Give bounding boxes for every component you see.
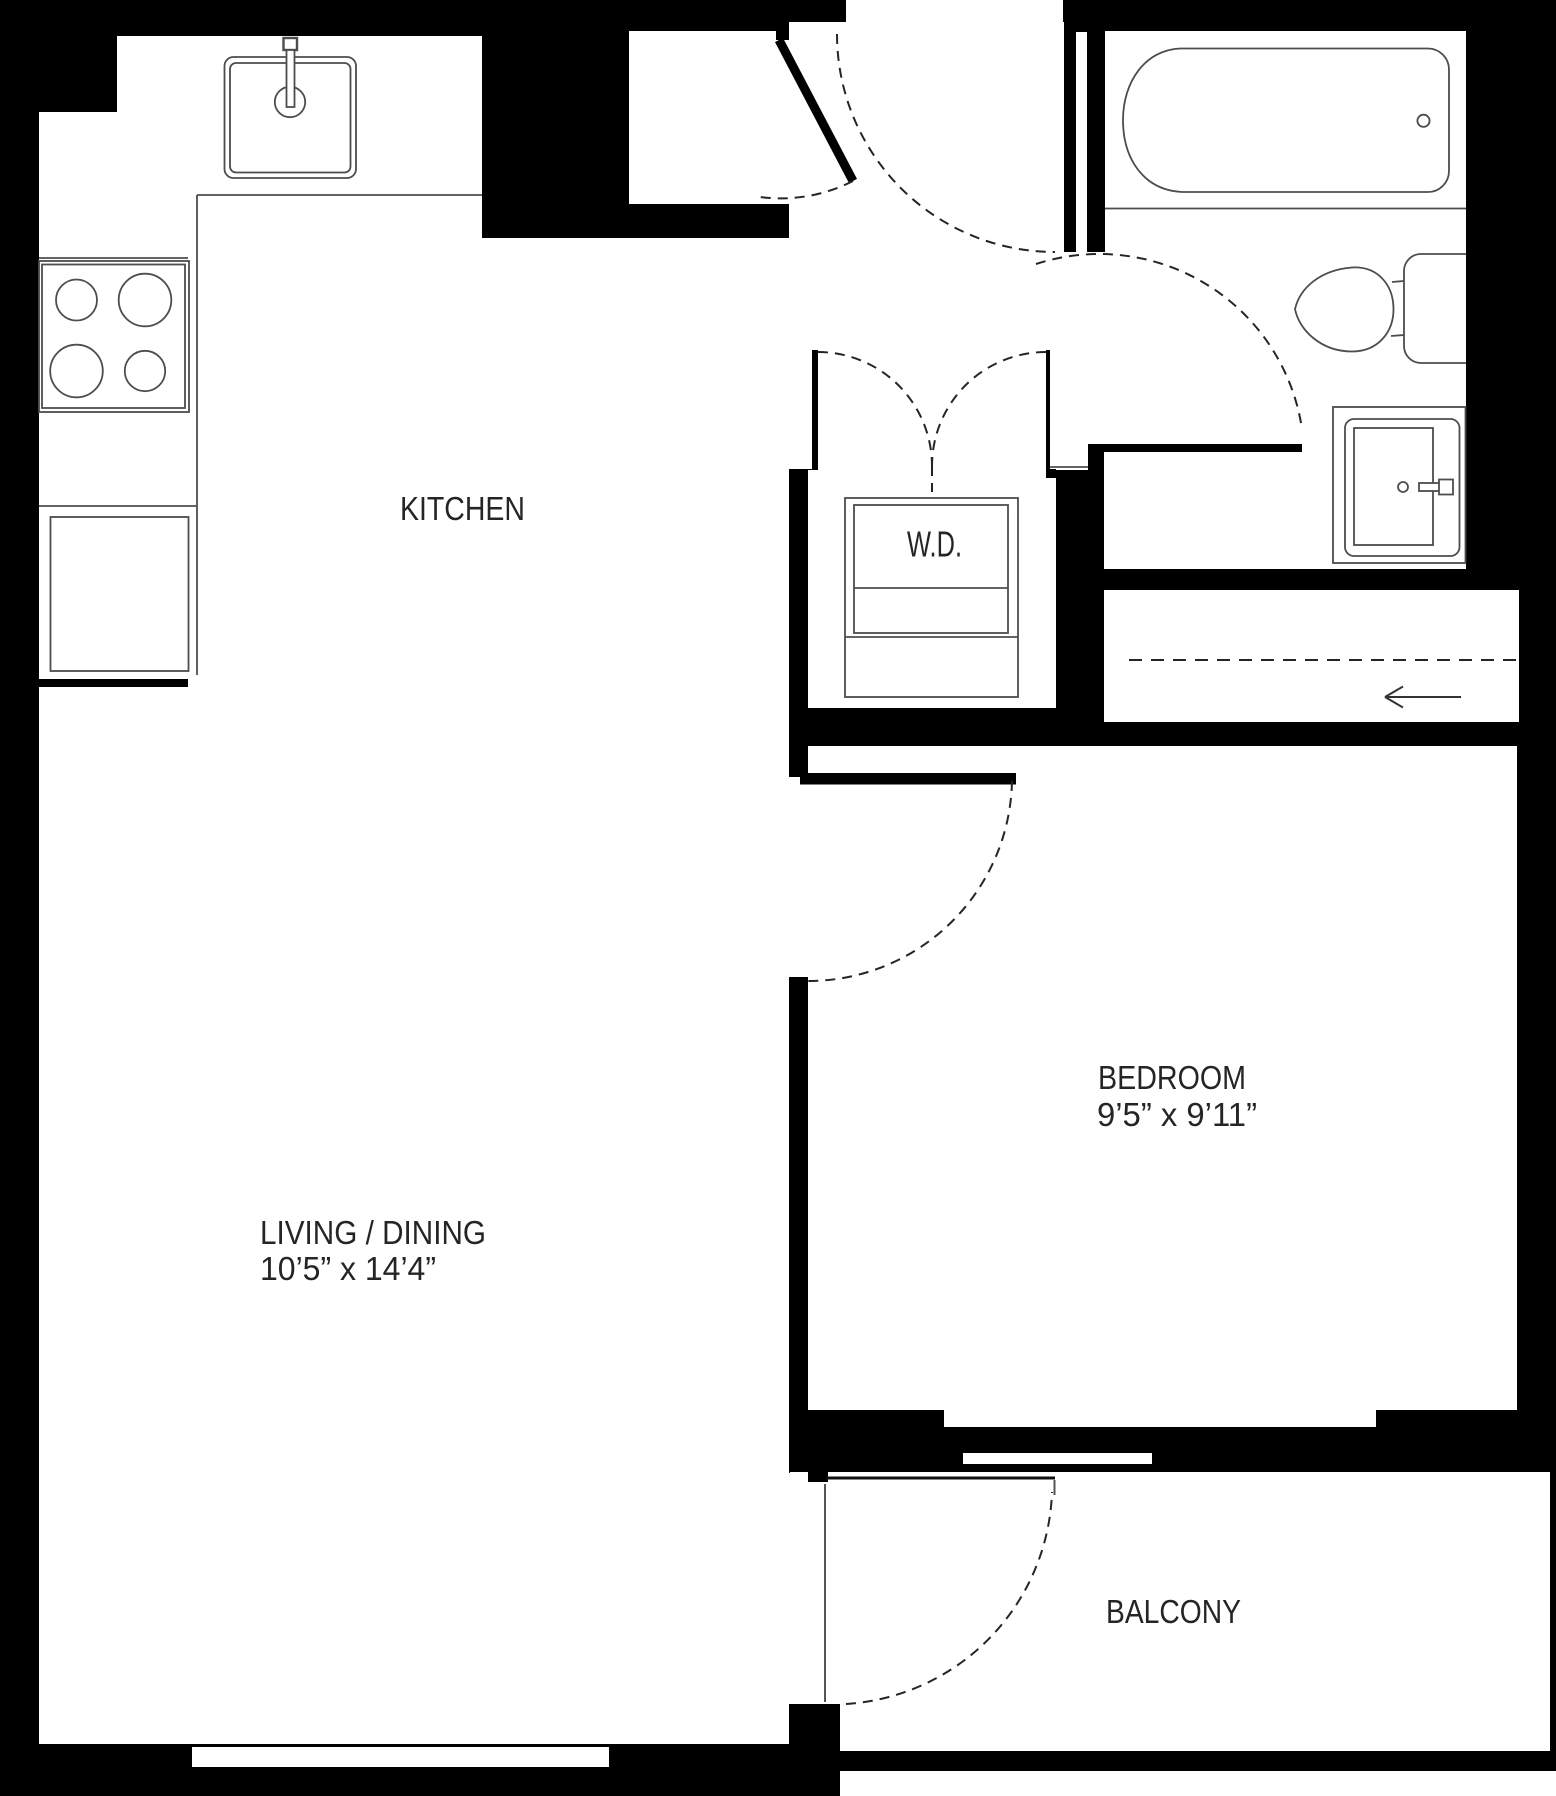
- svg-text:10’5” x 14’4”: 10’5” x 14’4”: [260, 1250, 436, 1287]
- svg-text:LIVING / DINING: LIVING / DINING: [260, 1214, 486, 1251]
- svg-text:BALCONY: BALCONY: [1106, 1593, 1241, 1630]
- svg-text:W.D.: W.D.: [907, 524, 962, 565]
- svg-text:9’5” x 9’11”: 9’5” x 9’11”: [1097, 1096, 1257, 1133]
- svg-text:BEDROOM: BEDROOM: [1098, 1059, 1246, 1096]
- svg-text:KITCHEN: KITCHEN: [400, 490, 525, 527]
